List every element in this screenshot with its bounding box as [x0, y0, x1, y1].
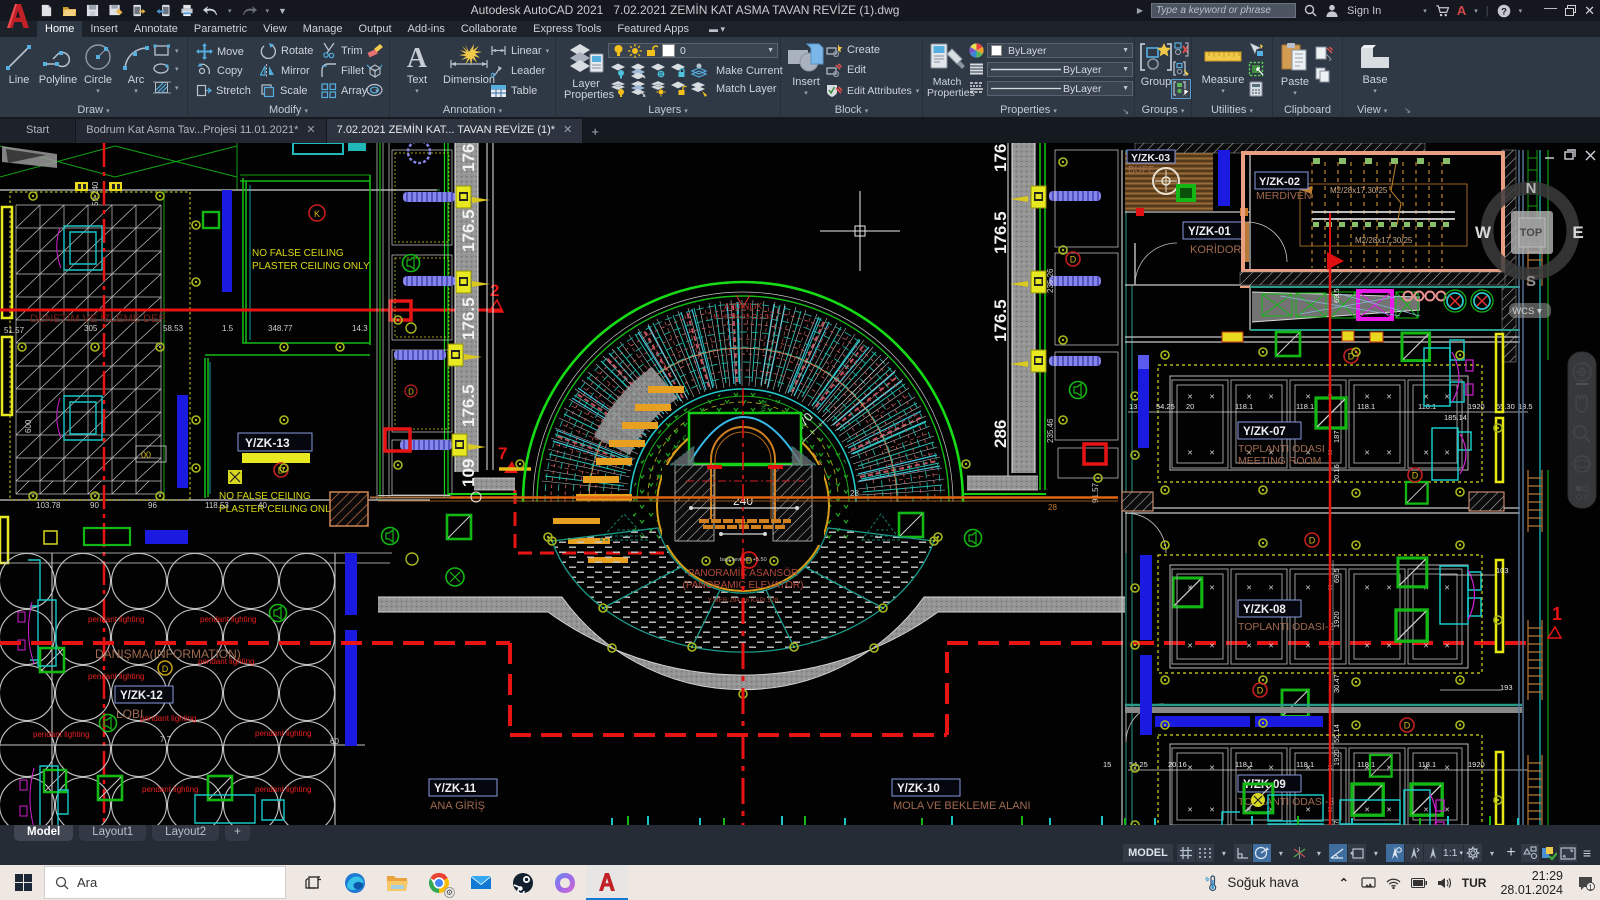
- svg-text:✕: ✕: [1187, 643, 1193, 650]
- svg-text:176.5: 176.5: [459, 209, 478, 252]
- svg-text:Y/ZK-07: Y/ZK-07: [1243, 426, 1286, 438]
- svg-text:176.5: 176.5: [459, 143, 478, 172]
- svg-text:✕: ✕: [1246, 643, 1252, 650]
- svg-text:14.3: 14.3: [352, 324, 368, 333]
- svg-text:TOPLANTI ODASI: TOPLANTI ODASI: [1238, 443, 1325, 455]
- svg-text:348.77: 348.77: [268, 324, 293, 333]
- svg-text:28: 28: [1048, 503, 1057, 512]
- svg-text:✕: ✕: [1444, 807, 1450, 814]
- svg-text:E: E: [1572, 223, 1583, 242]
- svg-text:✕: ✕: [1209, 394, 1215, 401]
- svg-text:55.30: 55.30: [1496, 402, 1515, 411]
- svg-text:Y/ZK-03: Y/ZK-03: [1131, 152, 1170, 164]
- svg-text:305: 305: [84, 324, 98, 333]
- svg-text:✕: ✕: [1209, 765, 1215, 772]
- svg-text:54.25: 54.25: [1156, 402, 1175, 411]
- svg-text:176.5: 176.5: [991, 211, 1010, 254]
- svg-text:NO FALSE CEILING: NO FALSE CEILING: [252, 248, 344, 259]
- svg-text:✕: ✕: [1187, 807, 1193, 814]
- svg-text:28: 28: [850, 489, 859, 498]
- svg-text:118.1: 118.1: [1357, 402, 1375, 411]
- svg-text:KORİDOR: KORİDOR: [1190, 243, 1241, 256]
- svg-text:✕: ✕: [1305, 643, 1311, 650]
- svg-text:Y/ZK-11: Y/ZK-11: [434, 783, 477, 795]
- svg-text:✕: ✕: [1444, 585, 1450, 592]
- svg-text:176.5: 176.5: [459, 297, 478, 340]
- svg-text:118.1: 118.1: [1235, 402, 1253, 411]
- svg-text:Y/ZK-02: Y/ZK-02: [1259, 176, 1300, 188]
- svg-text:pendant lighting: pendant lighting: [255, 729, 312, 738]
- svg-text:✕: ✕: [1268, 394, 1274, 401]
- svg-text:pendant lighting: pendant lighting: [140, 714, 197, 723]
- svg-text:✕: ✕: [1386, 643, 1392, 650]
- svg-text:✕: ✕: [1444, 765, 1450, 772]
- svg-text:Y/ZK-10: Y/ZK-10: [897, 783, 940, 795]
- svg-text:1: 1: [1588, 882, 1592, 891]
- svg-text:13.5: 13.5: [1518, 402, 1533, 411]
- svg-text:BUFE: BUFE: [1128, 165, 1155, 176]
- svg-text:193: 193: [1500, 683, 1513, 692]
- svg-text:30.47: 30.47: [1332, 674, 1341, 693]
- svg-text:✕: ✕: [1364, 450, 1370, 457]
- svg-text:pendant lighting: pendant lighting: [88, 615, 145, 624]
- svg-text:118.1: 118.1: [1235, 760, 1253, 769]
- svg-text:118.1: 118.1: [1296, 402, 1314, 411]
- svg-text:PLASTER CEILING ONLY: PLASTER CEILING ONLY: [252, 261, 370, 272]
- svg-text:✕: ✕: [1268, 585, 1274, 592]
- svg-text:W: W: [1475, 223, 1492, 242]
- svg-text:1920: 1920: [1332, 749, 1341, 766]
- svg-text:55.14: 55.14: [1332, 724, 1341, 743]
- svg-text:20.16: 20.16: [1332, 464, 1341, 483]
- svg-text:M2/28x17.30/25: M2/28x17.30/25: [1355, 236, 1413, 245]
- svg-text:00: 00: [141, 450, 151, 460]
- svg-text:✕: ✕: [1444, 450, 1450, 457]
- svg-text:✕: ✕: [1305, 807, 1311, 814]
- svg-text:WCS ▾: WCS ▾: [1512, 306, 1542, 317]
- svg-text:A: A: [407, 43, 428, 72]
- svg-text:118.53: 118.53: [205, 501, 229, 510]
- svg-text:✕: ✕: [1187, 765, 1193, 772]
- svg-text:D: D: [408, 388, 414, 397]
- svg-text:DANIŞMA(INFORMATION): DANIŞMA(INFORMATION): [95, 647, 241, 661]
- svg-text:Y/ZK-08: Y/ZK-08: [1243, 604, 1286, 616]
- svg-text:pendant lighting: pendant lighting: [33, 730, 90, 739]
- svg-text:Y/ZK-12: Y/ZK-12: [120, 690, 163, 702]
- svg-text:?: ?: [1501, 6, 1507, 17]
- svg-text:176.5: 176.5: [991, 143, 1010, 172]
- svg-text:M2/28x17.30/25: M2/28x17.30/25: [1330, 186, 1388, 195]
- svg-text:TOPLANTI ODASI-2: TOPLANTI ODASI-2: [1238, 621, 1334, 633]
- svg-text:✕: ✕: [1444, 643, 1450, 650]
- svg-text:103.78: 103.78: [36, 501, 61, 510]
- svg-text:✕: ✕: [1386, 807, 1392, 814]
- svg-text:pendant lighting: pendant lighting: [88, 672, 145, 681]
- svg-text:✕: ✕: [1386, 585, 1392, 592]
- svg-text:40: 40: [258, 501, 267, 510]
- svg-text:✕: ✕: [1423, 643, 1429, 650]
- svg-text:✕: ✕: [1444, 394, 1450, 401]
- svg-text:TOP: TOP: [1520, 227, 1542, 239]
- svg-text:176.5: 176.5: [459, 384, 478, 427]
- svg-text:✕: ✕: [1268, 643, 1274, 650]
- svg-text:✕: ✕: [1246, 585, 1252, 592]
- svg-text:DENETİM VE İZLEME DEP.: DENETİM VE İZLEME DEP.: [30, 312, 167, 325]
- svg-text:600: 600: [24, 419, 33, 433]
- svg-text:185.14: 185.14: [1444, 413, 1467, 422]
- svg-text:D: D: [162, 664, 169, 674]
- svg-text:pendant lighting: pendant lighting: [142, 785, 199, 794]
- svg-text:✕: ✕: [1386, 450, 1392, 457]
- svg-text:Y/ZK-01: Y/ZK-01: [1188, 226, 1231, 238]
- svg-text:51.57: 51.57: [4, 326, 25, 335]
- svg-text:91.57: 91.57: [1091, 482, 1100, 503]
- svg-text:pendant lighting: pendant lighting: [255, 785, 312, 794]
- svg-text:✕: ✕: [1386, 394, 1392, 401]
- svg-text:N: N: [1526, 180, 1537, 197]
- svg-text:PLASTER CEILING ONLY: PLASTER CEILING ONLY: [219, 504, 337, 515]
- svg-text:15: 15: [1103, 760, 1111, 769]
- svg-text:✕: ✕: [1423, 807, 1429, 814]
- svg-text:✕: ✕: [1187, 394, 1193, 401]
- svg-text:7.7: 7.7: [160, 735, 172, 744]
- svg-text:ANA GİRİŞ: ANA GİRİŞ: [430, 799, 485, 812]
- svg-text:✕: ✕: [1209, 585, 1215, 592]
- svg-text:118.1: 118.1: [1357, 760, 1375, 769]
- svg-text:✕: ✕: [1209, 450, 1215, 457]
- svg-text:M.H:294.93-O:2.51: M.H:294.93-O:2.51: [713, 314, 773, 321]
- svg-text:58.53: 58.53: [163, 324, 184, 333]
- svg-text:MEETING ROOM: MEETING ROOM: [1238, 455, 1321, 467]
- svg-text:20: 20: [1186, 402, 1194, 411]
- svg-text:2: 2: [490, 281, 499, 300]
- svg-text:Y/ZK-13: Y/ZK-13: [245, 436, 290, 450]
- svg-text:✕: ✕: [1364, 807, 1370, 814]
- svg-text:S: S: [1526, 273, 1536, 290]
- svg-text:✕: ✕: [1209, 807, 1215, 814]
- svg-text:118.1: 118.1: [1296, 760, 1314, 769]
- svg-text:286: 286: [991, 420, 1010, 448]
- svg-text:✕: ✕: [1423, 450, 1429, 457]
- svg-text:1920: 1920: [1468, 760, 1485, 769]
- svg-text:✕: ✕: [1364, 643, 1370, 650]
- svg-text:✕: ✕: [1364, 585, 1370, 592]
- svg-text:MOLA VE BEKLEME ALANI: MOLA VE BEKLEME ALANI: [893, 800, 1031, 812]
- svg-text:✕: ✕: [1187, 585, 1193, 592]
- svg-text:96: 96: [148, 501, 157, 510]
- svg-text:90: 90: [90, 501, 99, 510]
- svg-text:187: 187: [1332, 820, 1341, 825]
- svg-text:235.26: 235.26: [1046, 268, 1055, 293]
- svg-text:✕: ✕: [1246, 394, 1252, 401]
- svg-text:✕: ✕: [1305, 585, 1311, 592]
- svg-text:✕: ✕: [1209, 643, 1215, 650]
- svg-text:1920: 1920: [1468, 402, 1485, 411]
- svg-text:MERDİVEN: MERDİVEN: [1256, 189, 1311, 202]
- svg-text:20.16: 20.16: [1168, 760, 1187, 769]
- svg-text:69.5: 69.5: [1332, 288, 1341, 303]
- svg-text:✕: ✕: [1305, 394, 1311, 401]
- svg-text:LOBI: LOBI: [116, 707, 143, 721]
- svg-text:K: K: [314, 209, 320, 219]
- svg-text:235.46: 235.46: [1046, 418, 1055, 443]
- svg-text:69.5: 69.5: [1332, 568, 1341, 583]
- svg-text:1920: 1920: [1332, 611, 1341, 628]
- svg-text:60: 60: [330, 737, 339, 746]
- svg-text:1: 1: [1552, 604, 1562, 624]
- svg-text:103: 103: [1496, 566, 1509, 575]
- svg-text:7: 7: [498, 444, 507, 463]
- svg-text:118.1: 118.1: [1418, 760, 1436, 769]
- svg-text:✕: ✕: [1364, 394, 1370, 401]
- svg-text:pendant lighting: pendant lighting: [200, 615, 257, 624]
- svg-text:✕: ✕: [1187, 450, 1193, 457]
- svg-text:176.5: 176.5: [991, 299, 1010, 342]
- svg-text:187: 187: [1332, 430, 1341, 443]
- svg-text:✕: ✕: [1268, 765, 1274, 772]
- svg-text:1.5: 1.5: [222, 324, 234, 333]
